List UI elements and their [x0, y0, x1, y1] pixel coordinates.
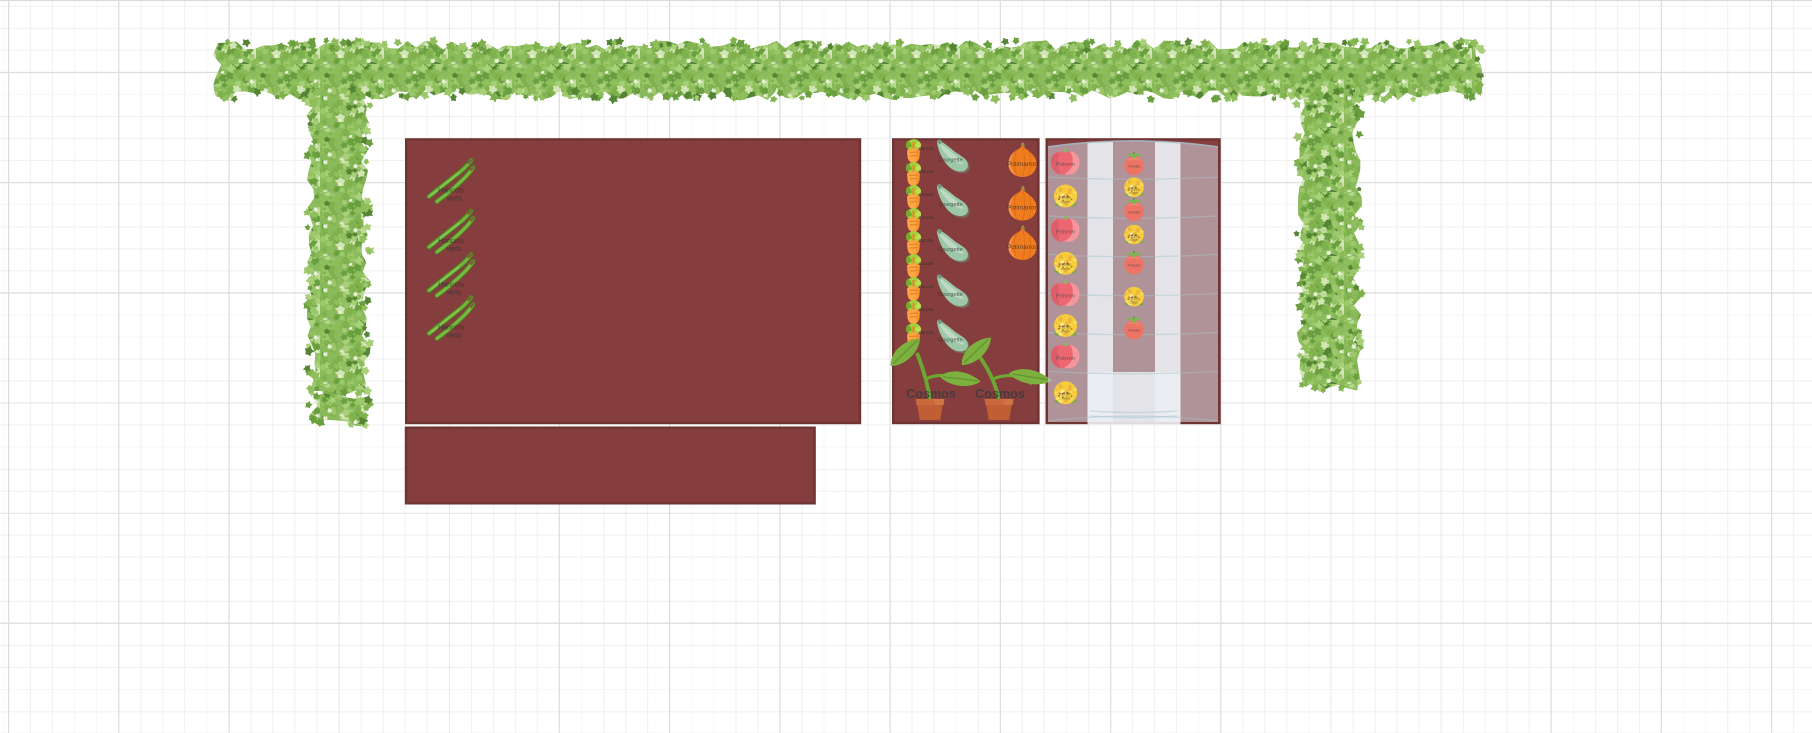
svg-text:Carotte: Carotte	[919, 146, 934, 151]
svg-text:Carotte: Carotte	[919, 307, 934, 312]
svg-text:Carotte: Carotte	[919, 215, 934, 220]
svg-text:Cosmos: Cosmos	[975, 387, 1025, 401]
svg-text:Haricots: Haricots	[438, 238, 464, 245]
svg-text:Cosmos: Cosmos	[906, 387, 956, 401]
svg-text:verts: verts	[446, 196, 462, 203]
svg-text:Carotte: Carotte	[919, 238, 934, 243]
svg-text:Carotte: Carotte	[919, 169, 934, 174]
svg-text:Carotte: Carotte	[919, 192, 934, 197]
svg-text:Haricots: Haricots	[438, 325, 464, 332]
svg-text:Courgette: Courgette	[938, 247, 963, 253]
svg-text:Carotte: Carotte	[919, 261, 934, 266]
svg-text:verts: verts	[446, 290, 462, 297]
svg-text:Potimarron: Potimarron	[1007, 244, 1038, 251]
svg-text:Potimarron: Potimarron	[1007, 161, 1038, 168]
svg-text:Courgette: Courgette	[938, 337, 963, 343]
svg-text:verts: verts	[446, 333, 462, 340]
svg-text:Haricots: Haricots	[438, 282, 464, 289]
svg-text:Courgette: Courgette	[938, 202, 963, 208]
svg-text:Carotte: Carotte	[919, 284, 934, 289]
svg-text:Carotte: Carotte	[919, 330, 934, 335]
svg-text:Courgette: Courgette	[938, 292, 963, 298]
svg-text:Courgette: Courgette	[938, 158, 963, 164]
svg-text:verts: verts	[446, 246, 462, 253]
svg-text:Haricots: Haricots	[438, 188, 464, 195]
svg-text:Potimarron: Potimarron	[1007, 205, 1038, 212]
